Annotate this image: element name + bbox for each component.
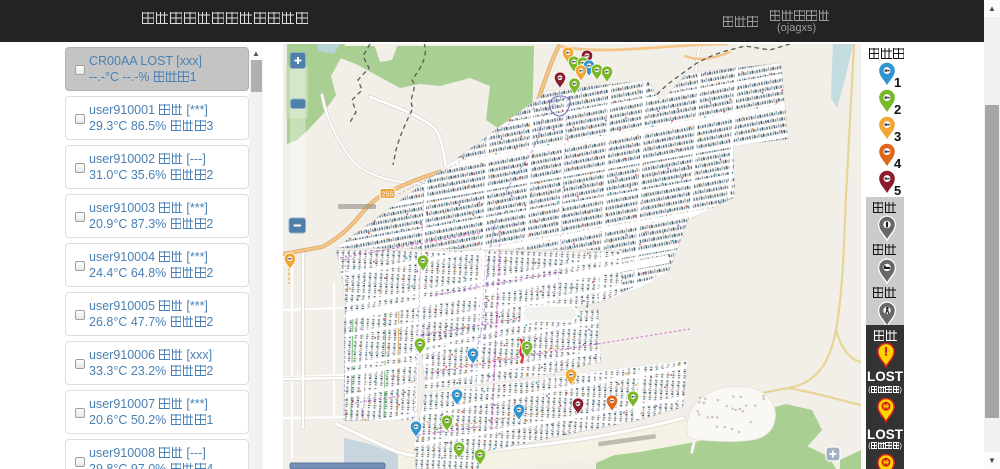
svg-text:255: 255	[382, 192, 394, 199]
